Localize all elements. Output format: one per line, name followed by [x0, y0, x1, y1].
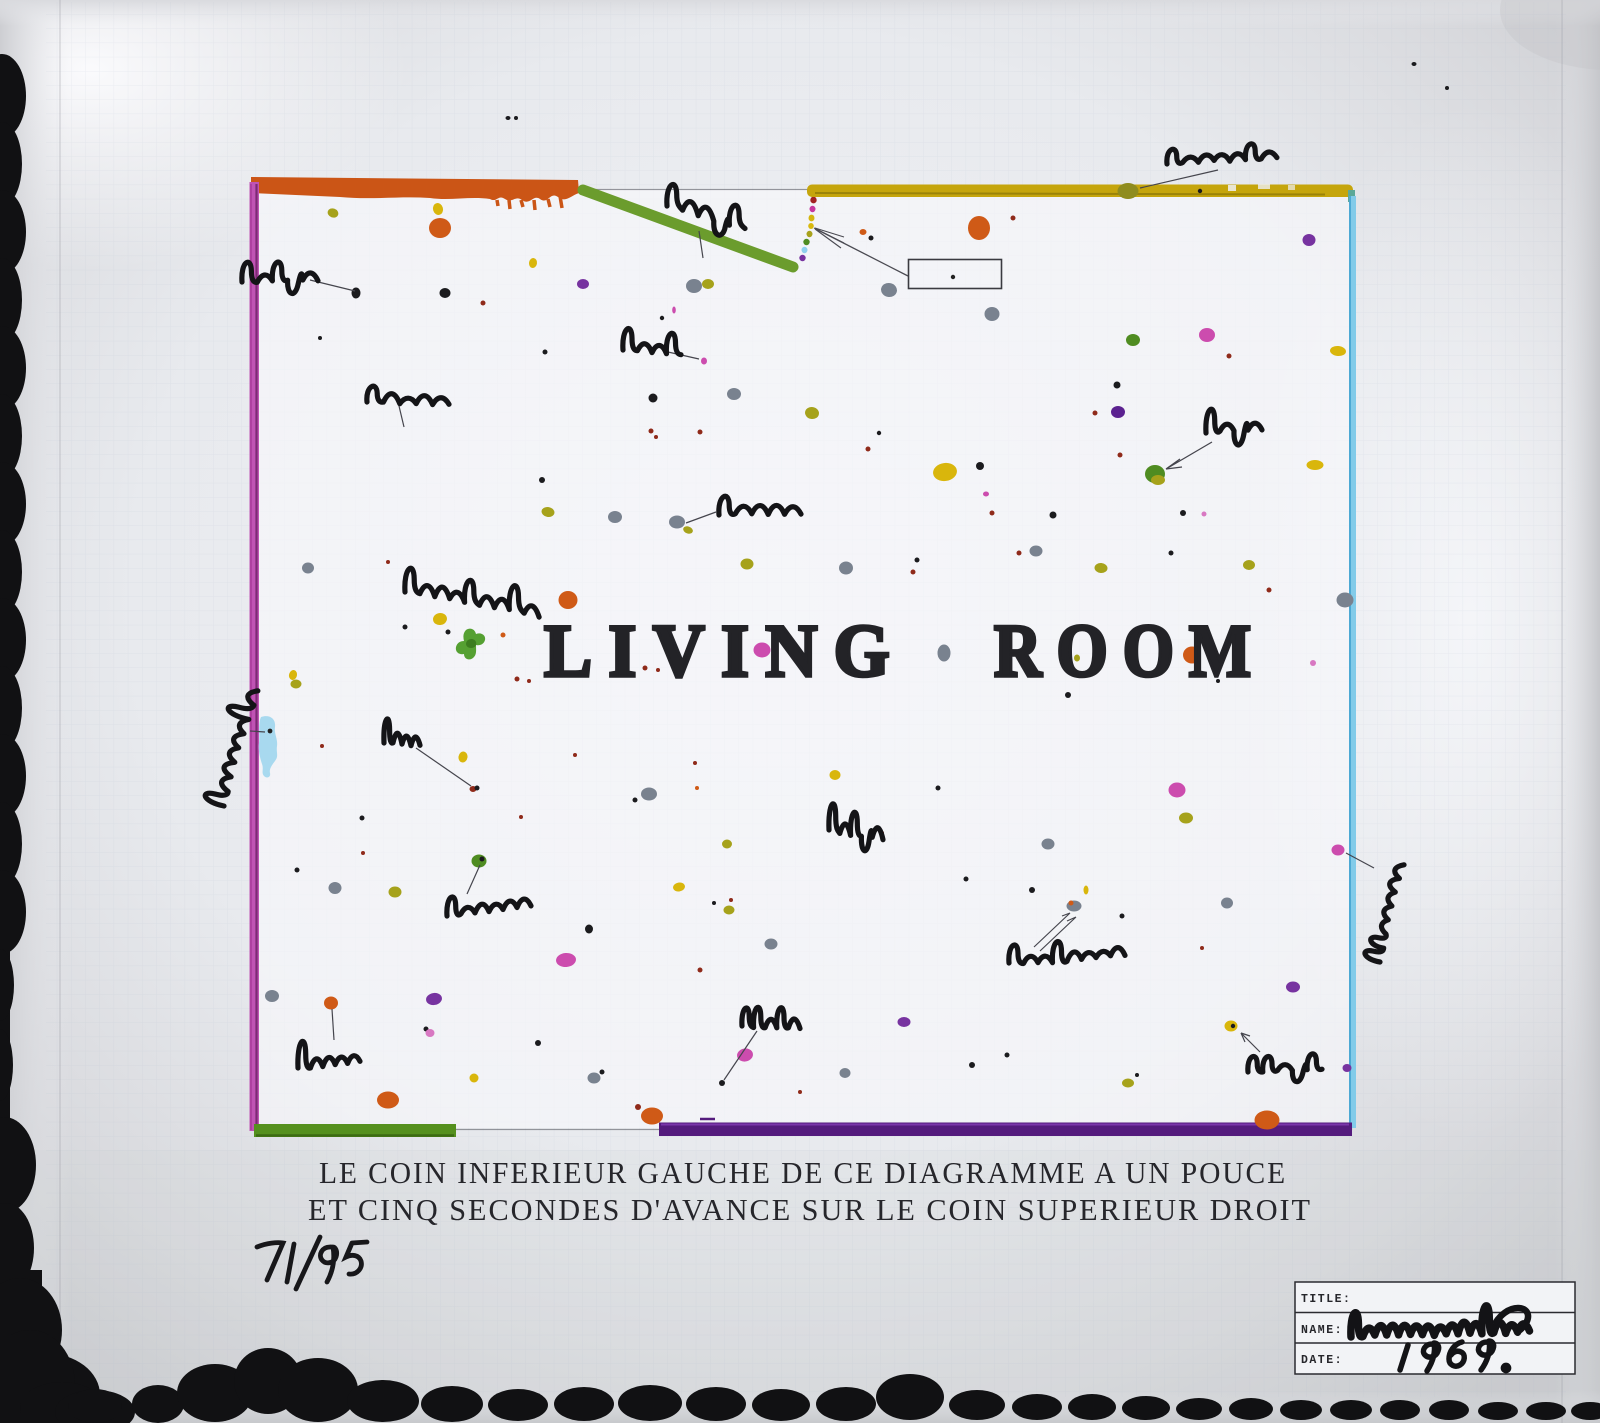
svg-text:NAME:: NAME: [1301, 1324, 1343, 1337]
svg-text:LIVING: LIVING [544, 610, 906, 693]
svg-text:DATE:: DATE: [1301, 1354, 1343, 1367]
svg-text:ET CINQ SECONDES D'AVANCE SUR: ET CINQ SECONDES D'AVANCE SUR LE COIN SU… [308, 1192, 1312, 1227]
svg-text:ROOM: ROOM [994, 610, 1266, 693]
svg-text:LE COIN INFERIEUR GAUCHE DE CE: LE COIN INFERIEUR GAUCHE DE CE DIAGRAMME… [319, 1155, 1287, 1190]
svg-text:TITLE:: TITLE: [1301, 1293, 1351, 1306]
